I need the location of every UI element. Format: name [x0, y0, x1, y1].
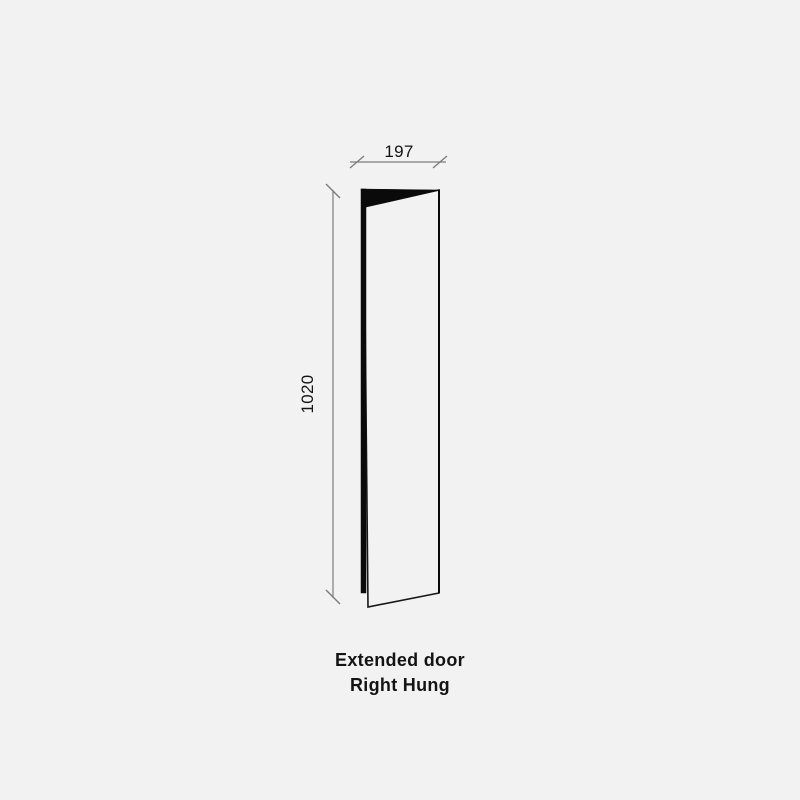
door-diagram-svg: 197 1020 Extended door Right Hung: [0, 0, 800, 800]
width-dimension-label: 197: [384, 142, 413, 161]
door-free-edge: [361, 189, 366, 593]
height-dimension: 1020: [298, 184, 340, 604]
width-dimension: 197: [350, 142, 447, 168]
door-top-edge-wedge: [361, 189, 439, 207]
caption: Extended door Right Hung: [335, 650, 465, 695]
door-drawing: [361, 189, 439, 607]
caption-line-2: Right Hung: [350, 675, 450, 695]
door-face: [364, 190, 439, 607]
drawing-canvas: 197 1020 Extended door Right Hung: [0, 0, 800, 800]
caption-line-1: Extended door: [335, 650, 465, 670]
height-dimension-label: 1020: [298, 374, 317, 413]
